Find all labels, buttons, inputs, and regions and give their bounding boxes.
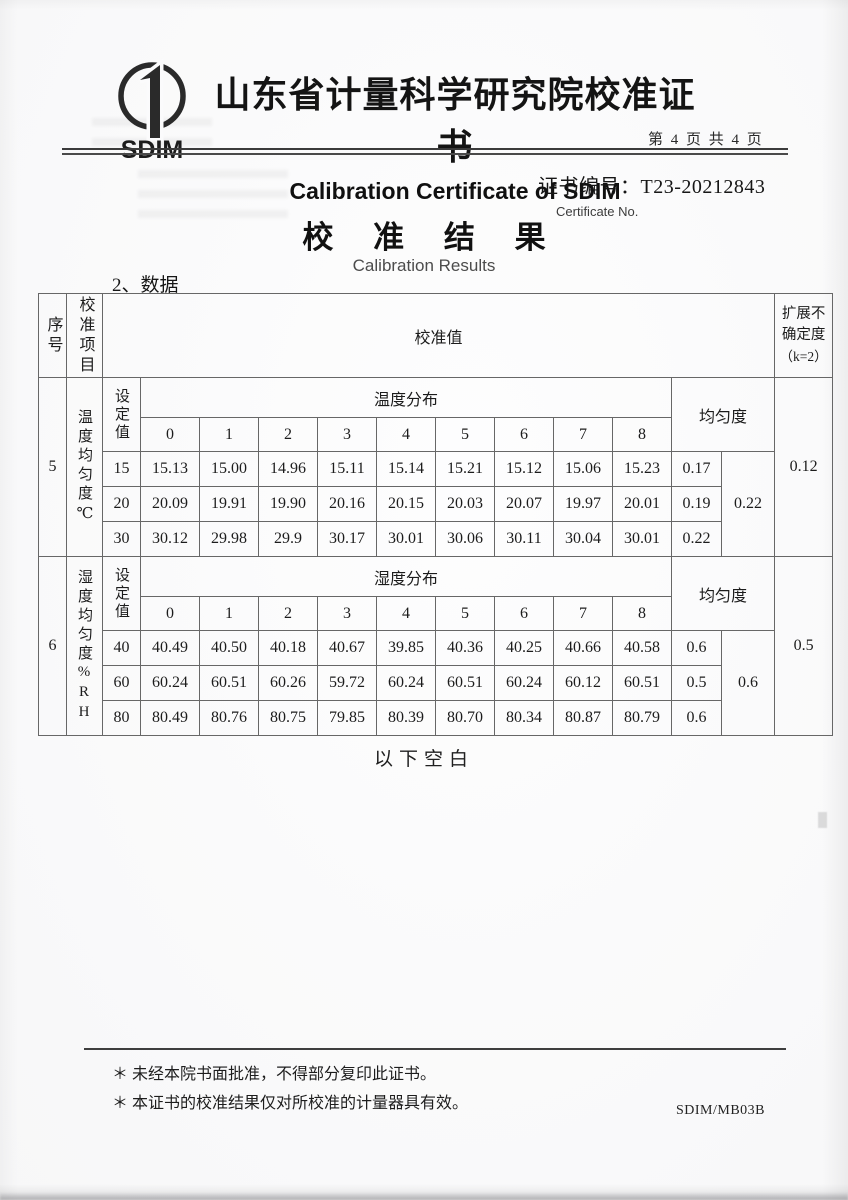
- position-cell: 7: [554, 597, 613, 631]
- set-value-cell: 20: [103, 487, 141, 522]
- value-cell: 80.34: [495, 701, 554, 736]
- value-cell: 30.06: [436, 522, 495, 557]
- position-cell: 3: [318, 597, 377, 631]
- value-cell: 15.13: [141, 452, 200, 487]
- set-value-cell: 30: [103, 522, 141, 557]
- position-cell: 8: [613, 418, 672, 452]
- uniformity-cell: 0.17: [672, 452, 722, 487]
- value-cell: 80.39: [377, 701, 436, 736]
- value-cell: 29.9: [259, 522, 318, 557]
- value-cell: 79.85: [318, 701, 377, 736]
- humidity-set-label: 设定值: [103, 557, 141, 631]
- set-value-cell: 80: [103, 701, 141, 736]
- value-cell: 30.04: [554, 522, 613, 557]
- humidity-distribution-label: 湿度分布: [141, 557, 672, 597]
- header-item: 校准项目: [67, 294, 103, 378]
- uniformity-cell: 0.19: [672, 487, 722, 522]
- value-cell: 19.97: [554, 487, 613, 522]
- humidity-row-40: 40 40.49 40.50 40.18 40.67 39.85 40.36 4…: [39, 631, 833, 666]
- temp-item: 温度均匀度℃: [67, 378, 103, 557]
- temp-uniformity-label: 均匀度: [672, 378, 775, 452]
- certificate-number-line: 证书编号：T23-20212843: [538, 170, 765, 199]
- position-cell: 0: [141, 418, 200, 452]
- humidity-section-header-row: 6 湿度均匀度%RH 设定值 湿度分布 均匀度 0.5: [39, 557, 833, 597]
- value-cell: 15.12: [495, 452, 554, 487]
- value-cell: 60.24: [495, 666, 554, 701]
- value-cell: 15.21: [436, 452, 495, 487]
- position-cell: 7: [554, 418, 613, 452]
- value-cell: 40.50: [200, 631, 259, 666]
- value-cell: 80.75: [259, 701, 318, 736]
- temp-row-15: 15 15.13 15.00 14.96 15.11 15.14 15.21 1…: [39, 452, 833, 487]
- value-cell: 40.58: [613, 631, 672, 666]
- temp-distribution-label: 温度分布: [141, 378, 672, 418]
- scan-bottom-edge: [0, 1192, 848, 1200]
- uniformity-cell: 0.6: [672, 701, 722, 736]
- value-cell: 20.01: [613, 487, 672, 522]
- value-cell: 20.15: [377, 487, 436, 522]
- temp-section-header-row: 5 温度均匀度℃ 设定值 温度分布 均匀度 0.12: [39, 378, 833, 418]
- page-number: 第 4 页 共 4 页: [648, 128, 764, 149]
- table-header-row: 序号 校准项目 校准值 扩展不 确定度 （k=2）: [39, 294, 833, 378]
- uncertainty-header-line2: 确定度: [775, 325, 832, 346]
- results-title-cn: 校 准 结 果: [0, 212, 848, 257]
- value-cell: 40.18: [259, 631, 318, 666]
- value-cell: 80.70: [436, 701, 495, 736]
- value-cell: 60.24: [377, 666, 436, 701]
- position-cell: 4: [377, 418, 436, 452]
- temp-set-label: 设定值: [103, 378, 141, 452]
- set-value-cell: 60: [103, 666, 141, 701]
- value-cell: 40.49: [141, 631, 200, 666]
- uncertainty-header-line1: 扩展不: [775, 304, 832, 325]
- sdim-logo-icon: SDIM: [100, 58, 212, 162]
- value-cell: 30.12: [141, 522, 200, 557]
- position-cell: 2: [259, 597, 318, 631]
- humidity-seq: 6: [39, 557, 67, 736]
- value-cell: 60.51: [436, 666, 495, 701]
- position-cell: 8: [613, 597, 672, 631]
- humidity-overall-uniformity: 0.6: [722, 631, 775, 736]
- value-cell: 80.87: [554, 701, 613, 736]
- value-cell: 30.01: [377, 522, 436, 557]
- header-expanded-uncertainty: 扩展不 确定度 （k=2）: [775, 294, 833, 378]
- footnote-copy-restriction: ＊ 未经本院书面批准，不得部分复印此证书。: [112, 1060, 468, 1089]
- position-cell: 5: [436, 597, 495, 631]
- value-cell: 60.12: [554, 666, 613, 701]
- scan-artifact: [818, 812, 827, 828]
- value-cell: 30.11: [495, 522, 554, 557]
- value-cell: 40.36: [436, 631, 495, 666]
- position-cell: 6: [495, 418, 554, 452]
- temp-expanded-uncertainty: 0.12: [775, 378, 833, 557]
- humidity-row-60: 60 60.24 60.51 60.26 59.72 60.24 60.51 6…: [39, 666, 833, 701]
- position-cell: 1: [200, 418, 259, 452]
- value-cell: 19.91: [200, 487, 259, 522]
- value-cell: 60.24: [141, 666, 200, 701]
- value-cell: 20.09: [141, 487, 200, 522]
- value-cell: 15.11: [318, 452, 377, 487]
- value-cell: 20.03: [436, 487, 495, 522]
- humidity-uniformity-label: 均匀度: [672, 557, 775, 631]
- set-value-cell: 15: [103, 452, 141, 487]
- value-cell: 80.76: [200, 701, 259, 736]
- value-cell: 60.51: [200, 666, 259, 701]
- blank-below-note: 以下空白: [0, 744, 848, 771]
- footnote-validity: ＊ 本证书的校准结果仅对所校准的计量器具有效。: [112, 1089, 468, 1118]
- value-cell: 15.14: [377, 452, 436, 487]
- uniformity-cell: 0.5: [672, 666, 722, 701]
- temp-row-30: 30 30.12 29.98 29.9 30.17 30.01 30.06 30…: [39, 522, 833, 557]
- value-cell: 59.72: [318, 666, 377, 701]
- calibration-results-table: 序号 校准项目 校准值 扩展不 确定度 （k=2） 5 温度均匀度℃ 设定值 温…: [38, 293, 833, 736]
- footnotes: ＊ 未经本院书面批准，不得部分复印此证书。 ＊ 本证书的校准结果仅对所校准的计量…: [112, 1060, 468, 1118]
- position-cell: 5: [436, 418, 495, 452]
- position-cell: 0: [141, 597, 200, 631]
- value-cell: 15.00: [200, 452, 259, 487]
- header-calibration-value: 校准值: [103, 294, 775, 378]
- uniformity-cell: 0.22: [672, 522, 722, 557]
- value-cell: 30.17: [318, 522, 377, 557]
- certificate-number-label: 证书编号：: [538, 176, 641, 198]
- position-cell: 1: [200, 597, 259, 631]
- temp-overall-uniformity: 0.22: [722, 452, 775, 557]
- value-cell: 40.67: [318, 631, 377, 666]
- value-cell: 19.90: [259, 487, 318, 522]
- value-cell: 30.01: [613, 522, 672, 557]
- header-seq: 序号: [39, 294, 67, 378]
- footer-divider: [84, 1048, 786, 1050]
- value-cell: 15.23: [613, 452, 672, 487]
- certificate-number-value: T23-20212843: [641, 176, 766, 198]
- value-cell: 40.25: [495, 631, 554, 666]
- value-cell: 15.06: [554, 452, 613, 487]
- humidity-item: 湿度均匀度%RH: [67, 557, 103, 736]
- humidity-row-80: 80 80.49 80.76 80.75 79.85 80.39 80.70 8…: [39, 701, 833, 736]
- temp-seq: 5: [39, 378, 67, 557]
- temp-row-20: 20 20.09 19.91 19.90 20.16 20.15 20.03 2…: [39, 487, 833, 522]
- header-divider: [62, 148, 788, 155]
- position-cell: 2: [259, 418, 318, 452]
- position-cell: 3: [318, 418, 377, 452]
- value-cell: 80.49: [141, 701, 200, 736]
- sdim-logo: SDIM: [100, 58, 212, 162]
- value-cell: 20.07: [495, 487, 554, 522]
- value-cell: 60.26: [259, 666, 318, 701]
- value-cell: 39.85: [377, 631, 436, 666]
- position-cell: 6: [495, 597, 554, 631]
- value-cell: 20.16: [318, 487, 377, 522]
- form-code: SDIM/MB03B: [676, 1103, 765, 1119]
- value-cell: 14.96: [259, 452, 318, 487]
- value-cell: 29.98: [200, 522, 259, 557]
- uniformity-cell: 0.6: [672, 631, 722, 666]
- uncertainty-header-k: （k=2）: [775, 346, 832, 367]
- position-cell: 4: [377, 597, 436, 631]
- value-cell: 40.66: [554, 631, 613, 666]
- set-value-cell: 40: [103, 631, 141, 666]
- value-cell: 80.79: [613, 701, 672, 736]
- humidity-expanded-uncertainty: 0.5: [775, 557, 833, 736]
- value-cell: 60.51: [613, 666, 672, 701]
